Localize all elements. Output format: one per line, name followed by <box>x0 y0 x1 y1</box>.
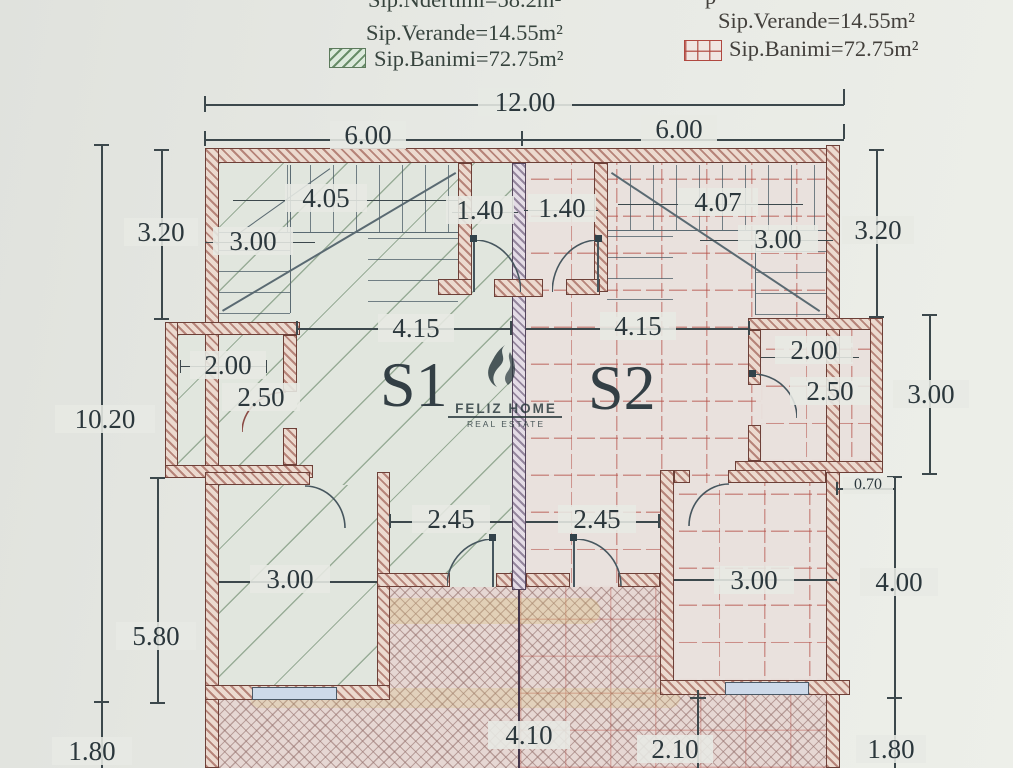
tick <box>154 149 169 151</box>
door-hinge <box>570 534 577 541</box>
wall-s1-bedroom-top <box>205 472 310 485</box>
wall-s1-hall-bottom <box>377 573 450 587</box>
brand-tagline: REAL ESTATE <box>462 419 550 429</box>
wall-s2-bath-top <box>748 318 883 330</box>
dim-stair-left-h: 3.00 <box>213 227 293 255</box>
dim-left-580: 5.80 <box>116 622 196 650</box>
dim-vest-left: 1.40 <box>446 196 514 224</box>
door-arc-s2-hall <box>574 539 622 592</box>
legend-left-line1: Sip.Ndertimi=58.2m² <box>368 0 561 13</box>
window-s2-bedroom <box>725 682 809 695</box>
dim-left-180: 1.80 <box>52 737 132 765</box>
door-hinge <box>489 534 496 541</box>
door-leaf-s1-hall <box>492 539 494 587</box>
dim-veranda-left: 4.10 <box>488 721 570 749</box>
dim-bath-left-h: 2.50 <box>222 383 300 411</box>
dim-line-left-outer <box>101 145 103 768</box>
door-leaf-s2-entry <box>597 240 599 292</box>
dim-vest-right: 1.40 <box>528 194 596 222</box>
wall-outer-right <box>826 145 840 768</box>
dim-pass-left: 2.45 <box>412 505 490 533</box>
wall-s1-stair-stub <box>458 163 472 292</box>
dim-top-left: 6.00 <box>330 121 406 149</box>
tick <box>389 514 391 528</box>
wall-s2-hall-bottom-a <box>526 573 570 587</box>
dim-right-320: 3.20 <box>842 216 914 244</box>
dim-right-400: 4.00 <box>860 568 938 596</box>
tick <box>869 149 884 151</box>
wall-s2-hall-bottom-b <box>618 573 660 587</box>
tick <box>922 314 937 316</box>
dim-bath-left-w: 2.00 <box>190 351 266 379</box>
legend-left-line2: Sip.Verande=14.55m² <box>366 20 563 46</box>
wall-s1-bath-left <box>165 322 178 478</box>
tick <box>510 321 512 335</box>
wall-s2-bedroom-top-b <box>728 470 826 483</box>
tick <box>204 96 206 112</box>
tick <box>836 482 838 495</box>
unit-label-s2: S2 <box>588 356 656 420</box>
unit-label-s1: S1 <box>380 353 448 417</box>
s2-stairs-mid-flight <box>607 232 673 300</box>
dim-hall-left: 4.15 <box>378 314 454 342</box>
wall-s1-hall-bottom-stub <box>496 573 512 587</box>
door-arc-s2-bedroom <box>688 483 729 531</box>
door-hinge <box>470 235 477 242</box>
dim-right-300: 3.00 <box>893 380 969 408</box>
tick <box>150 702 165 704</box>
legend-right-fragment: p <box>705 0 716 10</box>
dim-left-1020: 10.20 <box>55 405 155 433</box>
dim-pass-right: 2.45 <box>558 505 636 533</box>
dim-line-left-580 <box>157 478 159 704</box>
door-hinge <box>595 235 602 242</box>
dim-veranda-right: 2.10 <box>637 735 713 763</box>
tick <box>296 321 298 335</box>
tick <box>150 477 165 479</box>
dim-stair-right-w: 4.07 <box>678 188 758 216</box>
legend-right-line3: Sip.Banimi=72.75m² <box>729 36 918 62</box>
wall-s2-bath-stub-bottom <box>748 425 761 461</box>
dim-top-right: 6.00 <box>641 115 717 143</box>
wall-s2-bedroom-top-a <box>674 470 690 483</box>
dim-bed-right: 3.00 <box>714 566 794 594</box>
door-leaf-s1-entry <box>473 240 475 292</box>
dim-right-070: 0.70 <box>843 477 893 494</box>
dim-bed-left: 3.00 <box>250 565 330 593</box>
tick <box>658 514 660 528</box>
tick <box>894 482 896 495</box>
entry-threshold-left <box>438 279 472 295</box>
tick <box>266 360 267 373</box>
dim-top-total: 12.00 <box>478 88 572 116</box>
tick <box>748 321 750 335</box>
legend-green-hatch-swatch <box>329 48 366 68</box>
dim-bath-right-h: 2.50 <box>790 377 870 405</box>
tick <box>869 316 884 318</box>
legend-left-line3: Sip.Banimi=72.75m² <box>374 46 563 72</box>
dim-left-320: 3.20 <box>124 218 198 246</box>
dim-bath-right-w: 2.00 <box>775 336 853 364</box>
dim-stair-right-h: 3.00 <box>738 225 818 253</box>
wall-outer-top <box>205 148 840 163</box>
door-arc-s1-entry <box>474 240 521 298</box>
door-leaf-s2-hall <box>573 539 575 587</box>
dim-hall-right: 4.15 <box>600 312 676 340</box>
door-arc-s1-hall <box>447 539 495 592</box>
door-hinge <box>749 370 756 377</box>
tick <box>180 360 181 373</box>
tick <box>154 318 169 320</box>
brand-name: FELIZ HOME <box>450 401 562 416</box>
dim-right-180: 1.80 <box>856 735 926 763</box>
dim-line-top-halves <box>205 139 844 141</box>
tick <box>521 131 523 146</box>
brand-flame-icon <box>483 343 517 402</box>
legend-right-line2: Sip.Verande=14.55m² <box>718 8 915 34</box>
tick <box>843 124 845 139</box>
tick <box>94 144 109 146</box>
floor-plan-photo: 12.00 6.00 6.00 3.20 10.20 5.80 1.80 3.2… <box>0 0 1013 768</box>
dim-stair-left-w: 4.05 <box>285 184 367 212</box>
tick <box>690 697 706 699</box>
wall-s1-bath-top <box>165 322 300 335</box>
brand-rule <box>448 416 562 418</box>
legend-red-brick-swatch <box>684 40 722 61</box>
door-arc-s2-entry <box>552 240 599 298</box>
wall-s2-bath-right <box>870 318 883 473</box>
tick <box>204 131 206 146</box>
wall-s2-bedroom-left <box>660 470 674 695</box>
tick <box>922 473 937 475</box>
door-arc-s1-bedroom <box>305 485 346 533</box>
tick <box>94 701 109 703</box>
window-s1-bedroom <box>252 687 337 700</box>
tick <box>843 89 845 105</box>
